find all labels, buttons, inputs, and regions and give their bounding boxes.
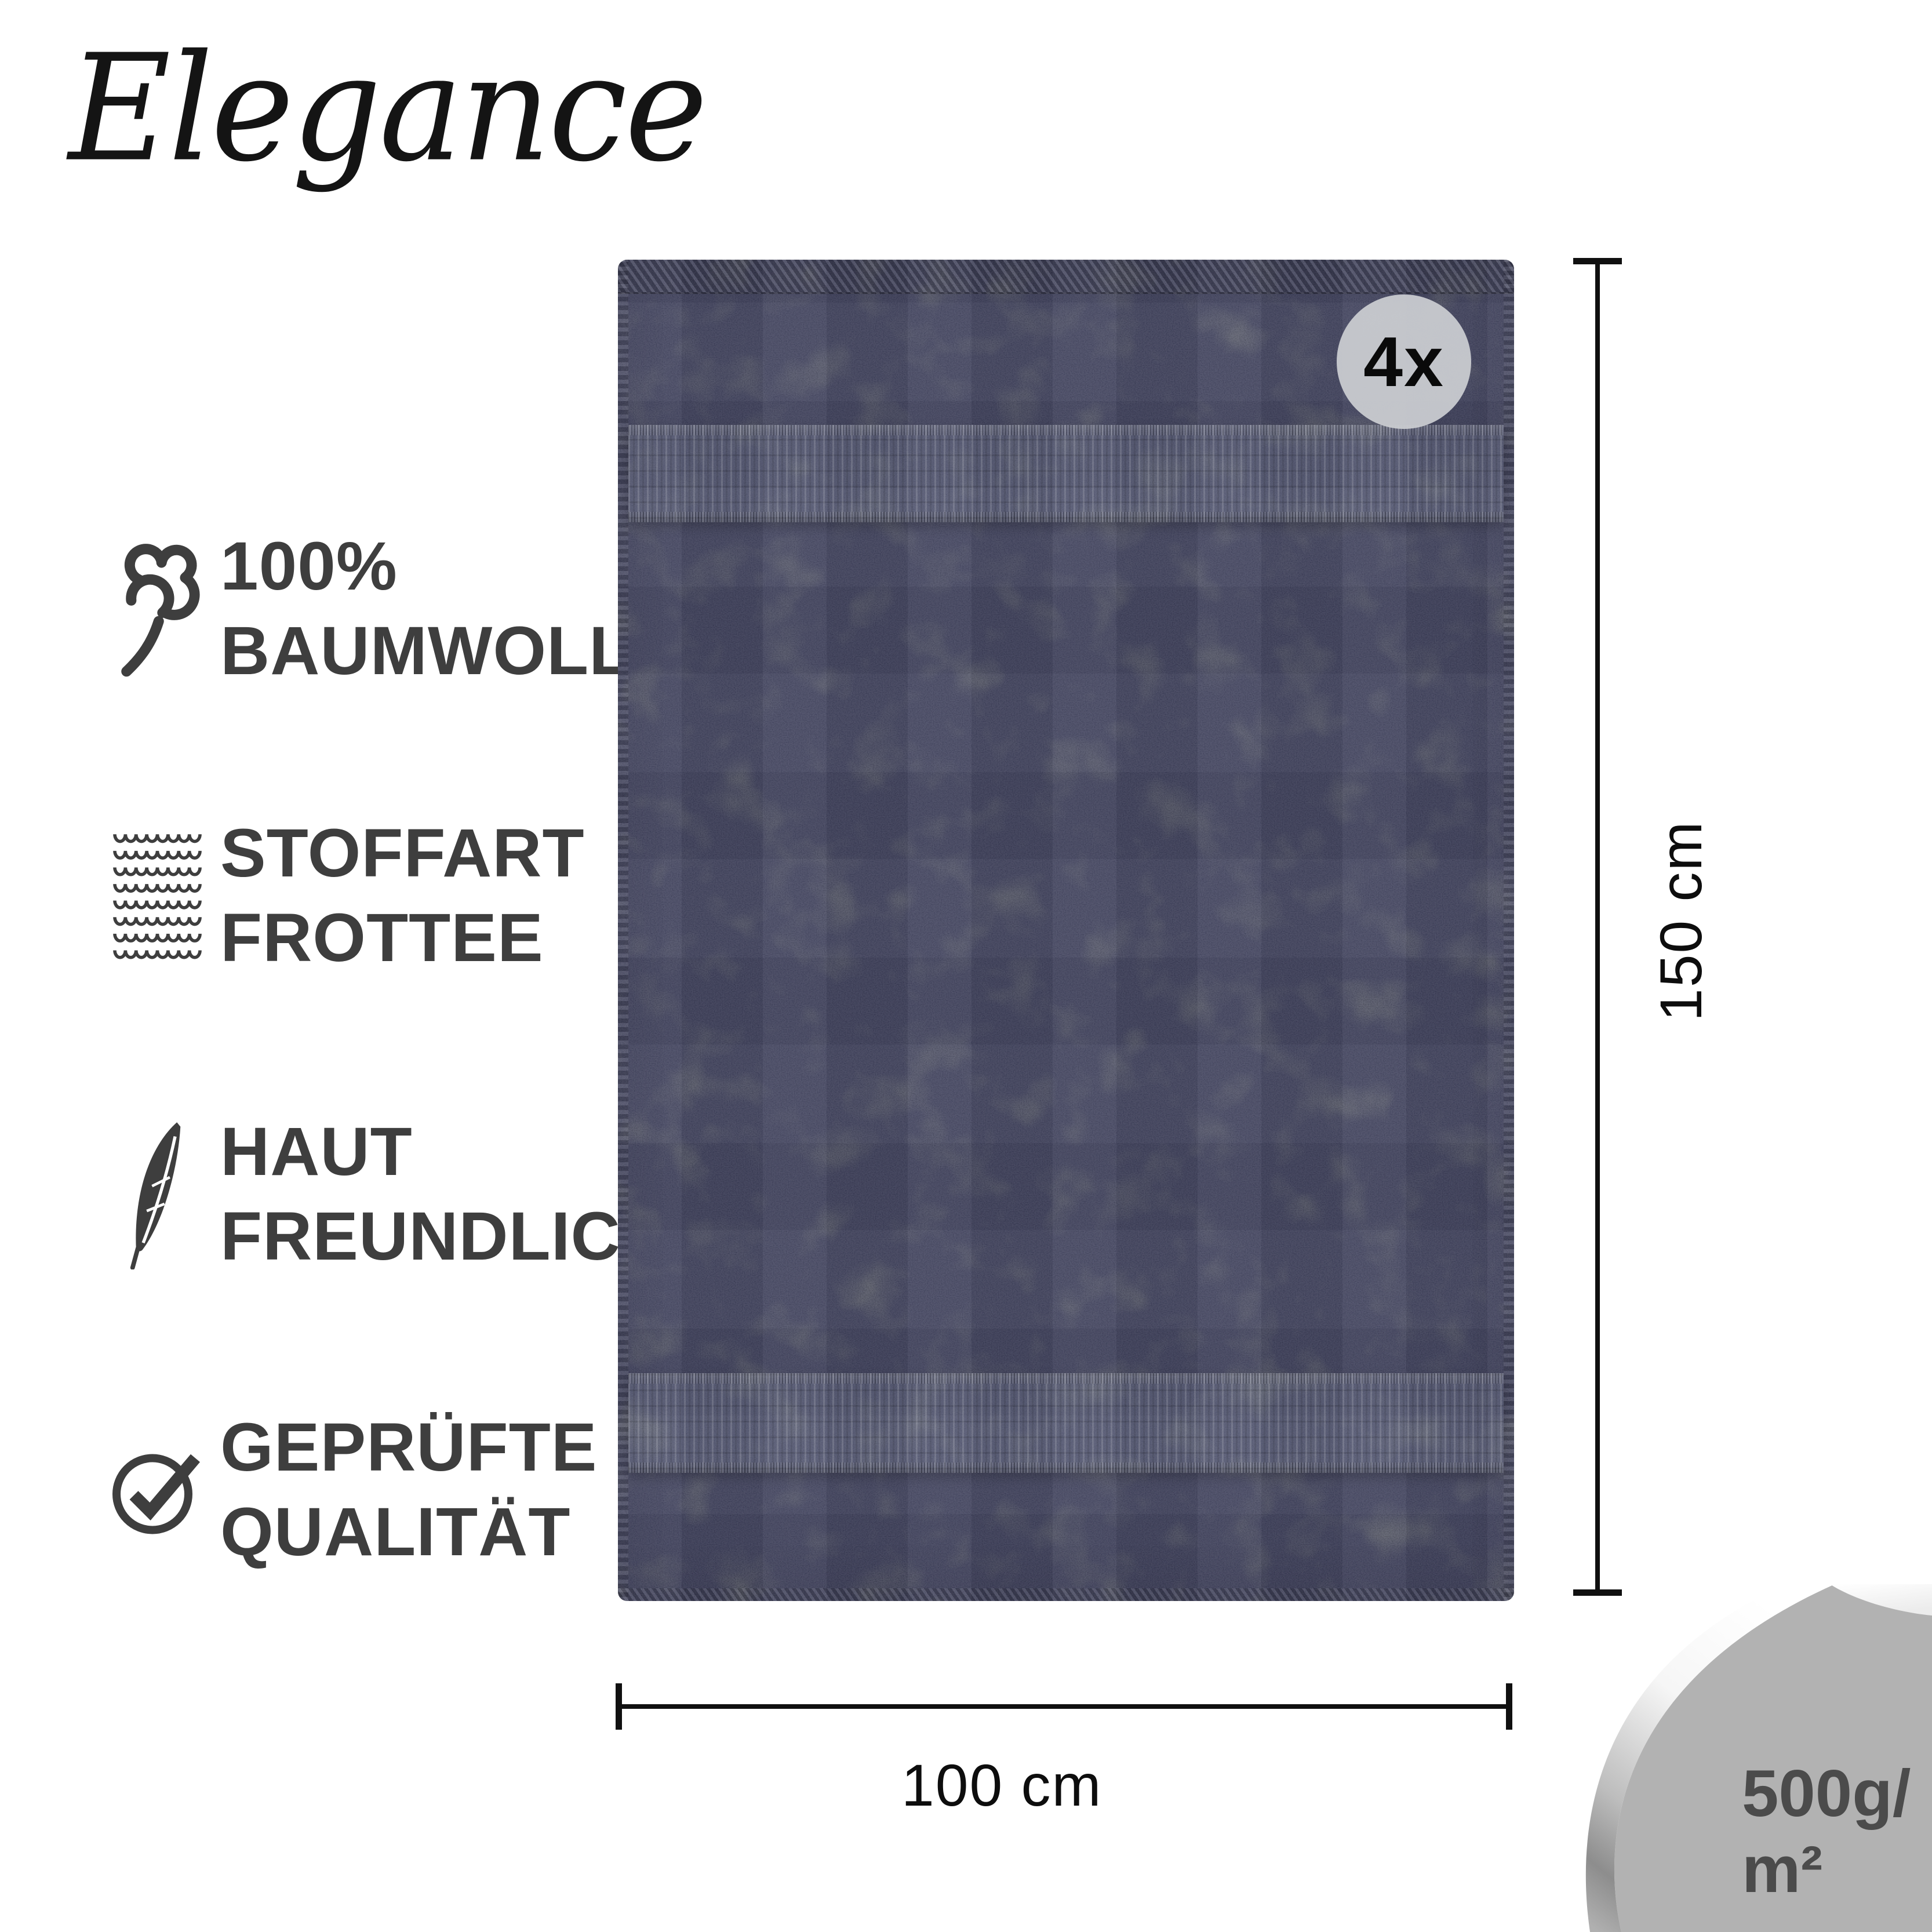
feather-icon (93, 1119, 220, 1269)
feature-row-skin: HAUT FREUNDLICH (93, 1110, 672, 1278)
feature-line: QUALITÄT (220, 1490, 598, 1574)
feature-row-cotton: 100% BAUMWOLLE (93, 525, 672, 693)
feature-row-quality: GEPRÜFTE QUALITÄT (93, 1406, 672, 1574)
weight-line: 500g/ (1742, 1756, 1911, 1832)
feature-text: STOFFART FROTTEE (220, 811, 585, 981)
weight-line: m² (1742, 1832, 1911, 1908)
towel-right-selvedge (1504, 260, 1514, 1601)
feature-line: HAUT (220, 1109, 671, 1194)
towel-bottom-selvedge (618, 1588, 1514, 1601)
width-dimension-label: 100 cm (901, 1752, 1103, 1820)
feature-line: FROTTEE (220, 896, 585, 980)
feature-text: 100% BAUMWOLLE (220, 524, 678, 694)
height-dimension-cap-top (1573, 258, 1622, 264)
width-dimension-cap-right (1506, 1683, 1512, 1730)
height-dimension-label: 150 cm (1647, 821, 1715, 1022)
product-infographic: Elegance 100% BAUMWOLLE (0, 0, 1932, 1932)
feature-text: GEPRÜFTE QUALITÄT (220, 1405, 598, 1575)
width-dimension-cap-left (616, 1683, 622, 1730)
quantity-badge: 4x (1337, 294, 1471, 429)
feature-text: HAUT FREUNDLICH (220, 1109, 671, 1279)
towel-left-selvedge (618, 260, 628, 1601)
quantity-badge-label: 4x (1363, 321, 1445, 402)
feature-line: BAUMWOLLE (220, 609, 678, 693)
width-dimension-line (618, 1704, 1512, 1709)
page-curl-corner: 500g/ m² (1584, 1584, 1932, 1932)
towel-top-selvedge (618, 260, 1514, 294)
towel-dobby-band-top (628, 425, 1504, 522)
cotton-icon (93, 538, 220, 680)
feature-row-fabric: STOFFART FROTTEE (93, 812, 672, 980)
fabric-texture-icon (93, 826, 220, 965)
feature-line: GEPRÜFTE (220, 1405, 598, 1490)
height-dimension-line (1595, 260, 1600, 1593)
brand-logo: Elegance (68, 28, 705, 190)
check-circle-icon (93, 1422, 220, 1558)
feature-line: STOFFART (220, 811, 585, 896)
towel-photo: 4x (618, 260, 1514, 1601)
towel-dobby-band-bottom (628, 1373, 1504, 1473)
weight-label: 500g/ m² (1742, 1756, 1911, 1908)
feature-line: FREUNDLICH (220, 1194, 671, 1279)
feature-line: 100% (220, 524, 678, 609)
